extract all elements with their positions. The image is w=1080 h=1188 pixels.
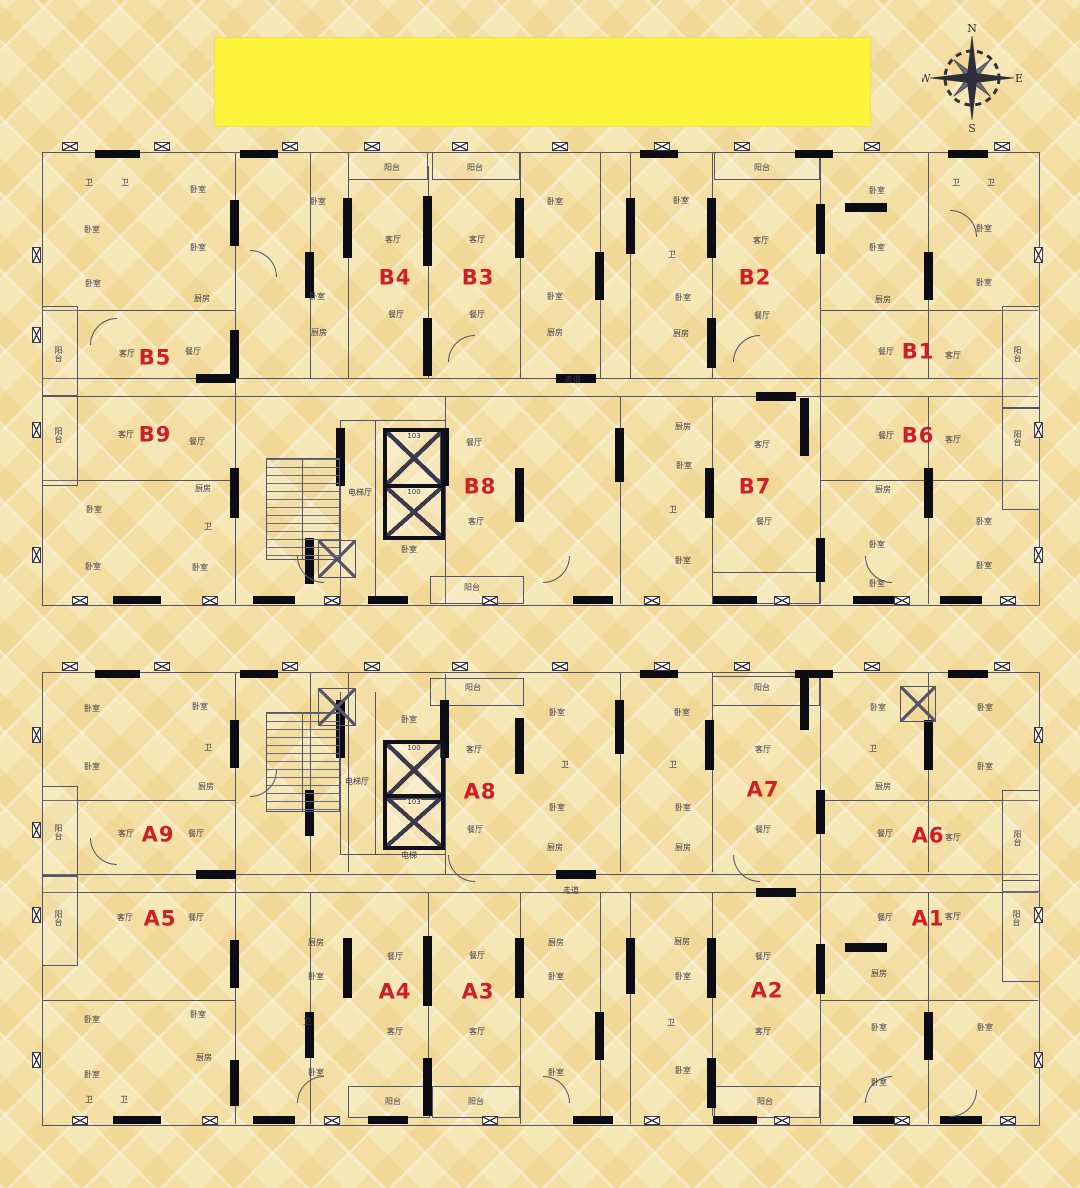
room-label: 客厅 (466, 746, 482, 754)
room-label: 卧室 (84, 763, 100, 771)
wall-segment (816, 944, 825, 994)
room-label: 卧室 (548, 1069, 564, 1077)
window-marker (894, 1116, 910, 1125)
room-label: 厨房 (547, 329, 563, 337)
staircase (266, 712, 340, 812)
window-marker (1034, 907, 1043, 923)
wall-segment (196, 870, 236, 879)
room-label: 厨房 (547, 844, 563, 852)
window-marker (364, 142, 380, 151)
wall-segment (573, 596, 613, 604)
wall-line (340, 854, 445, 855)
unit-label-a2: A2 (751, 981, 784, 1002)
window-marker (1034, 547, 1043, 563)
room-label: 客厅 (469, 236, 485, 244)
wall-line (42, 396, 1038, 397)
room-label: 餐厅 (755, 826, 771, 834)
room-label: 卧室 (190, 244, 206, 252)
room-label: 卧室 (976, 518, 992, 526)
window-marker (72, 596, 88, 605)
wall-segment (795, 150, 833, 158)
wall-segment (640, 670, 678, 678)
room-label: 卧室 (869, 187, 885, 195)
window-marker (1034, 247, 1043, 263)
room-label: 卫 (85, 1096, 93, 1104)
compass-label-e: E (1015, 72, 1022, 85)
wall-segment (707, 938, 716, 998)
room-label: 阳台 (1012, 910, 1020, 926)
compass-label-n: N (967, 22, 977, 35)
corridor-label: 走道 (565, 376, 581, 384)
wall-line (630, 892, 631, 1124)
room-label: 厨房 (194, 295, 210, 303)
wall-line (520, 892, 521, 1124)
room-label: 卧室 (675, 294, 691, 302)
window-marker (154, 142, 170, 151)
wall-segment (816, 538, 825, 582)
room-label: 卧室 (977, 704, 993, 712)
wall-line (520, 152, 521, 378)
room-label: 卧室 (310, 198, 326, 206)
room-label: 厨房 (675, 844, 691, 852)
window-marker (32, 907, 41, 923)
window-marker (32, 822, 41, 838)
room-label: 厨房 (875, 783, 891, 791)
room-label: 阳台 (1013, 430, 1021, 446)
room-label: 阳台 (54, 910, 62, 926)
wall-segment (707, 318, 716, 368)
window-marker (1034, 422, 1043, 438)
room-label: 卧室 (85, 563, 101, 571)
unit-label-b4: B4 (379, 268, 412, 289)
room-label: 餐厅 (185, 348, 201, 356)
room-label: 客厅 (118, 431, 134, 439)
room-label: 卫 (952, 179, 960, 187)
elevator-hall-label: 电梯厅 (345, 778, 369, 786)
room-label: 厨房 (875, 486, 891, 494)
wall-segment (756, 392, 796, 401)
window-marker (1000, 596, 1016, 605)
wall-segment (240, 150, 278, 158)
wall-line (348, 152, 349, 378)
window-marker (32, 1052, 41, 1068)
wall-segment (515, 468, 524, 522)
wall-segment (924, 468, 933, 518)
unit-label-b5: B5 (139, 348, 172, 369)
room-label: 卧室 (869, 244, 885, 252)
unit-label-a6: A6 (912, 826, 945, 847)
elevator-capacity-label: 103 (406, 799, 421, 806)
wall-segment (924, 720, 933, 770)
room-label: 卧室 (190, 1011, 206, 1019)
room-label: 客厅 (945, 352, 961, 360)
wall-segment (240, 670, 278, 678)
window-marker (282, 662, 298, 671)
room-label: 卫 (668, 251, 676, 259)
compass-label-w: W (922, 72, 931, 85)
window-marker (994, 142, 1010, 151)
unit-label-b7: B7 (739, 477, 772, 498)
window-marker (202, 596, 218, 605)
window-marker (864, 662, 880, 671)
wall-segment (756, 888, 796, 897)
room-label: 卧室 (84, 226, 100, 234)
wall-line (375, 692, 376, 854)
room-label: 卧室 (976, 562, 992, 570)
window-marker (452, 142, 468, 151)
wall-segment (423, 936, 432, 1006)
window-marker (482, 596, 498, 605)
wall-segment (230, 330, 239, 378)
window-marker (774, 596, 790, 605)
room-label: 客厅 (945, 834, 961, 842)
room-label: 客厅 (469, 1028, 485, 1036)
wall-segment (343, 938, 352, 998)
window-marker (734, 662, 750, 671)
wall-line (42, 892, 1038, 893)
window-marker (202, 1116, 218, 1125)
room-label: 阳台 (1013, 346, 1021, 362)
wall-segment (230, 468, 239, 518)
window-marker (364, 662, 380, 671)
room-label: 餐厅 (467, 826, 483, 834)
room-label: 餐厅 (189, 438, 205, 446)
wall-segment (368, 1116, 408, 1124)
window-marker (654, 662, 670, 671)
wall-segment (705, 468, 714, 518)
room-label: 餐厅 (877, 830, 893, 838)
window-marker (654, 142, 670, 151)
window-marker (72, 1116, 88, 1125)
room-label: 厨房 (875, 296, 891, 304)
wall-segment (95, 150, 140, 158)
wall-segment (615, 428, 624, 482)
room-label: 阳台 (465, 684, 481, 692)
wall-segment (95, 670, 140, 678)
wall-segment (948, 670, 988, 678)
corridor-label: 走道 (563, 887, 579, 895)
room-label: 厨房 (195, 485, 211, 493)
duct-shaft (318, 688, 356, 726)
wall-line (375, 420, 376, 604)
elevator-hall-label: 电梯厅 (348, 489, 372, 497)
wall-segment (556, 870, 596, 879)
wall-segment (196, 374, 236, 383)
room-label: 客厅 (754, 441, 770, 449)
elevator-shaft: 103 (383, 428, 445, 488)
wall-segment (595, 1012, 604, 1060)
wall-segment (368, 596, 408, 604)
room-label: 卫 (669, 506, 677, 514)
wall-segment (230, 940, 239, 988)
room-label: 卧室 (84, 1071, 100, 1079)
wall-line (820, 1000, 1038, 1001)
window-marker (552, 142, 568, 151)
room-label: 卧室 (976, 225, 992, 233)
wall-segment (423, 1058, 432, 1116)
wall-segment (845, 943, 887, 952)
wall-segment (707, 1058, 716, 1108)
wall-segment (707, 198, 716, 258)
elevator-shaft: 100 (383, 740, 445, 800)
wall-segment (713, 596, 757, 604)
unit-label-b9: B9 (139, 425, 172, 446)
window-marker (62, 142, 78, 151)
window-marker (62, 662, 78, 671)
window-marker (32, 247, 41, 263)
wall-segment (800, 672, 809, 730)
room-label: 阳台 (464, 584, 480, 592)
room-label: 餐厅 (188, 830, 204, 838)
room-label: 客厅 (468, 518, 484, 526)
room-label: 餐厅 (755, 953, 771, 961)
room-label: 卫 (669, 761, 677, 769)
unit-label-a1: A1 (912, 909, 945, 930)
window-marker (1034, 727, 1043, 743)
window-marker (1000, 1116, 1016, 1125)
unit-label-b1: B1 (902, 342, 935, 363)
unit-label-a8: A8 (464, 782, 497, 803)
room-label: 卧室 (86, 506, 102, 514)
unit-label-a3: A3 (462, 982, 495, 1003)
room-label: 卫 (561, 761, 569, 769)
room-label: 厨房 (198, 783, 214, 791)
room-label: 餐厅 (878, 432, 894, 440)
window-marker (32, 327, 41, 343)
unit-label-b8: B8 (464, 477, 497, 498)
room-label: 卧室 (869, 580, 885, 588)
room-label: 阳台 (757, 1098, 773, 1106)
window-marker (774, 1116, 790, 1125)
room-label: 卫 (85, 179, 93, 187)
window-marker (452, 662, 468, 671)
room-label: 卫 (204, 744, 212, 752)
room-label: 卧室 (84, 705, 100, 713)
room-label: 阳台 (54, 427, 62, 443)
wall-line (42, 874, 1038, 875)
elevator-capacity-label: 100 (406, 489, 421, 496)
room-label: 卧室 (976, 279, 992, 287)
room-label: 卧室 (977, 1024, 993, 1032)
room-label: 卧室 (871, 1079, 887, 1087)
room-label: 厨房 (308, 939, 324, 947)
wall-line (340, 420, 445, 421)
room-label: 卧室 (192, 564, 208, 572)
room-label: 客厅 (755, 746, 771, 754)
room-label: 卧室 (673, 197, 689, 205)
room-label: 卧室 (675, 804, 691, 812)
window-marker (324, 1116, 340, 1125)
window-marker (552, 662, 568, 671)
wall-segment (423, 318, 432, 376)
room-label: 卧室 (308, 1069, 324, 1077)
wall-segment (816, 204, 825, 254)
room-label: 客厅 (755, 1028, 771, 1036)
room-label: 卧室 (676, 462, 692, 470)
redaction-banner (215, 38, 870, 126)
window-marker (482, 1116, 498, 1125)
wall-segment (626, 938, 635, 994)
compass-label-s: S (968, 122, 976, 134)
wall-line (42, 1000, 235, 1001)
window-marker (324, 596, 340, 605)
wall-segment (845, 203, 887, 212)
room-label: 厨房 (673, 330, 689, 338)
wall-segment (924, 252, 933, 300)
room-label: 卫 (303, 1018, 311, 1026)
wall-segment (940, 596, 982, 604)
elevator-shaft: 103 (383, 794, 445, 850)
room-label: 餐厅 (469, 952, 485, 960)
room-label: 餐厅 (388, 311, 404, 319)
room-label: 餐厅 (877, 914, 893, 922)
wall-segment (816, 790, 825, 834)
room-label: 卧室 (675, 1067, 691, 1075)
room-label: 卫 (121, 179, 129, 187)
balcony (1002, 880, 1040, 982)
wall-segment (343, 198, 352, 258)
room-label: 阳台 (54, 824, 62, 840)
room-label: 餐厅 (754, 312, 770, 320)
wall-segment (230, 1060, 239, 1106)
room-label: 卧室 (674, 709, 690, 717)
window-marker (1034, 1052, 1043, 1068)
room-label: 卧室 (192, 703, 208, 711)
room-label: 客厅 (118, 830, 134, 838)
wall-segment (230, 720, 239, 768)
window-marker (864, 142, 880, 151)
wall-segment (573, 1116, 613, 1124)
room-label: 卧室 (548, 973, 564, 981)
room-label: 厨房 (548, 939, 564, 947)
room-label: 卧室 (870, 704, 886, 712)
unit-label-b2: B2 (739, 268, 772, 289)
room-label: 厨房 (675, 423, 691, 431)
room-label: 阳台 (384, 164, 400, 172)
room-label: 卧室 (84, 1016, 100, 1024)
room-label: 卫 (987, 179, 995, 187)
wall-segment (924, 1012, 933, 1060)
room-label: 卫 (204, 523, 212, 531)
wall-segment (253, 596, 295, 604)
room-label: 阳台 (754, 684, 770, 692)
room-label: 卧室 (549, 709, 565, 717)
wall-line (630, 152, 631, 378)
wall-segment (713, 1116, 757, 1124)
wall-segment (515, 718, 524, 774)
wall-line (42, 378, 1038, 379)
wall-segment (113, 596, 161, 604)
room-label: 卫 (667, 1019, 675, 1027)
wall-segment (423, 196, 432, 266)
wall-segment (626, 198, 635, 254)
wall-segment (940, 1116, 982, 1124)
wall-segment (800, 398, 809, 456)
window-marker (32, 727, 41, 743)
plan-boundary-building-a (42, 672, 1040, 1126)
compass-rose: NESW (922, 22, 1022, 134)
room-label: 餐厅 (469, 311, 485, 319)
room-label: 卧室 (190, 186, 206, 194)
room-label: 卧室 (871, 1024, 887, 1032)
room-label: 厨房 (871, 970, 887, 978)
window-marker (644, 596, 660, 605)
room-label: 餐厅 (387, 953, 403, 961)
wall-line (600, 892, 601, 1124)
wall-segment (705, 720, 714, 770)
window-marker (644, 1116, 660, 1125)
room-label: 阳台 (467, 164, 483, 172)
plan-boundary-building-b (42, 152, 1040, 606)
room-label: 客厅 (753, 237, 769, 245)
window-marker (994, 662, 1010, 671)
room-label: 卧室 (869, 541, 885, 549)
window-marker (32, 547, 41, 563)
window-marker (734, 142, 750, 151)
room-label: 卫 (869, 745, 877, 753)
window-marker (32, 422, 41, 438)
room-label: 客厅 (117, 914, 133, 922)
unit-label-b6: B6 (902, 426, 935, 447)
wall-segment (515, 198, 524, 258)
elevator-shaft: 100 (383, 484, 445, 540)
room-label: 阳台 (385, 1098, 401, 1106)
elevator-capacity-label: 103 (406, 433, 421, 440)
unit-label-a5: A5 (144, 909, 177, 930)
room-label: 卫 (120, 1096, 128, 1104)
room-label: 厨房 (311, 329, 327, 337)
unit-label-a9: A9 (142, 825, 175, 846)
wall-segment (230, 200, 239, 246)
wall-segment (853, 596, 897, 604)
duct-shaft (900, 686, 936, 722)
room-label: 餐厅 (466, 439, 482, 447)
room-label: 卧室 (977, 763, 993, 771)
window-marker (894, 596, 910, 605)
room-label: 厨房 (674, 938, 690, 946)
room-label: 餐厅 (756, 518, 772, 526)
room-label: 客厅 (119, 350, 135, 358)
wall-segment (515, 938, 524, 998)
room-label: 卧室 (547, 198, 563, 206)
room-label: 客厅 (385, 236, 401, 244)
room-label: 卧室 (401, 716, 417, 724)
unit-label-a4: A4 (379, 982, 412, 1003)
room-label: 客厅 (945, 436, 961, 444)
unit-label-a7: A7 (747, 780, 780, 801)
room-label: 阳台 (1013, 830, 1021, 846)
room-label: 卧室 (675, 557, 691, 565)
wall-segment (253, 1116, 295, 1124)
room-label: 厨房 (196, 1054, 212, 1062)
window-marker (154, 662, 170, 671)
elevator-note-label: 电梯 (401, 852, 417, 860)
elevator-capacity-label: 100 (406, 745, 421, 752)
room-label: 阳台 (54, 346, 62, 362)
wall-segment (640, 150, 678, 158)
room-label: 卧室 (549, 804, 565, 812)
room-label: 卧室 (401, 546, 417, 554)
wall-segment (853, 1116, 897, 1124)
unit-label-b3: B3 (462, 268, 495, 289)
room-label: 阳台 (468, 1098, 484, 1106)
room-label: 客厅 (387, 1028, 403, 1036)
room-label: 卧室 (308, 973, 324, 981)
room-label: 餐厅 (188, 914, 204, 922)
wall-segment (615, 700, 624, 754)
room-label: 卧室 (309, 293, 325, 301)
wall-line (820, 672, 821, 1124)
